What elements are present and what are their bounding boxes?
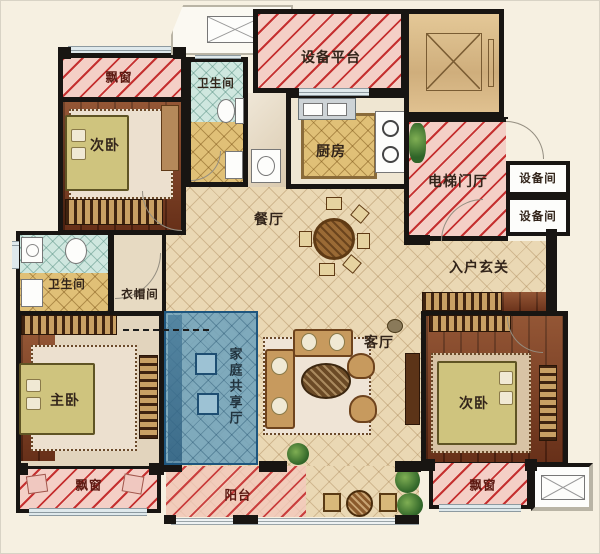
washer xyxy=(21,237,43,263)
dining-table xyxy=(313,218,355,260)
burner xyxy=(382,120,399,137)
pillow xyxy=(26,397,41,410)
closet-bottom-right xyxy=(429,315,511,332)
label-bay-bottom-right: 飘窗 xyxy=(469,475,496,494)
label-equipment-room-lower: 设备间 xyxy=(519,208,557,224)
wardrobe-bottom-right xyxy=(539,365,557,441)
pillow xyxy=(71,147,86,160)
master-closet xyxy=(21,315,117,335)
sink-bath-top xyxy=(225,151,243,179)
floor-plan: 飘窗 次卧 卫生间 设备平台 厨房 xyxy=(0,0,600,554)
label-bay-top-left: 飘窗 xyxy=(105,67,132,86)
label-kitchen: 厨房 xyxy=(316,141,346,161)
armchair-right xyxy=(349,395,377,423)
family-hall-curtain xyxy=(168,315,182,461)
toilet-left xyxy=(65,238,87,264)
wall-segment xyxy=(149,463,164,475)
toilet-tank xyxy=(235,98,244,124)
balcony-chair xyxy=(379,493,397,512)
kitchen-sink xyxy=(298,98,356,120)
label-family-hall: 家庭共享厅 xyxy=(225,347,244,427)
balcony-table xyxy=(346,490,373,517)
sofa-cushion xyxy=(301,333,317,351)
toilet-top xyxy=(217,99,235,123)
floor-lamp xyxy=(387,319,403,333)
label-dining: 餐厅 xyxy=(254,209,284,229)
washer-drum xyxy=(26,244,39,257)
balcony-railing xyxy=(171,518,419,525)
basin xyxy=(257,156,275,176)
window-bottom-right xyxy=(439,504,521,512)
label-master-bedroom: 主卧 xyxy=(50,390,80,410)
label-bath-top: 卫生间 xyxy=(197,75,235,91)
coffee-table xyxy=(301,363,351,399)
sofa-cushion xyxy=(271,397,288,415)
label-living: 客厅 xyxy=(364,332,394,352)
label-bath-left: 卫生间 xyxy=(48,276,86,292)
wall-segment xyxy=(421,459,435,471)
pillow xyxy=(499,391,513,405)
sink-bath-left xyxy=(21,279,43,307)
dashed-opening xyxy=(123,329,209,331)
dining-chair xyxy=(299,231,312,247)
pillow xyxy=(26,379,41,392)
wall-segment xyxy=(16,463,28,475)
window-kitchen xyxy=(299,88,369,96)
sink-bowl xyxy=(327,103,347,116)
family-chair xyxy=(197,393,219,415)
tv-cabinet xyxy=(405,353,420,425)
foyer-cabinet xyxy=(422,292,502,311)
elevator-x-icon xyxy=(426,33,482,91)
dining-chair xyxy=(326,197,342,210)
plant-icon xyxy=(397,493,423,517)
pillow xyxy=(499,371,513,385)
foyer-wood-passage xyxy=(502,292,546,313)
sink-bowl xyxy=(303,103,323,116)
label-cloakroom: 衣帽间 xyxy=(121,286,159,302)
wall-segment xyxy=(259,461,287,472)
label-equipment-platform: 设备平台 xyxy=(301,47,361,67)
label-bedroom-bottom-right: 次卧 xyxy=(459,393,489,413)
dining-chair xyxy=(357,233,370,249)
plant-icon xyxy=(409,123,426,163)
label-bay-bottom-left: 飘窗 xyxy=(75,475,102,494)
master-wardrobe xyxy=(139,355,158,439)
plant-icon xyxy=(287,443,309,465)
bay-seat xyxy=(26,474,48,495)
wall-segment xyxy=(525,459,537,471)
wall-segment xyxy=(173,47,186,59)
label-elevator-hall: 电梯门厅 xyxy=(428,171,488,191)
elevator-door-slot xyxy=(488,39,494,87)
stove xyxy=(375,111,405,173)
desk-top-left xyxy=(161,105,179,171)
pillow xyxy=(71,129,86,142)
window-bath-left xyxy=(12,241,19,269)
window-bottom-left xyxy=(29,508,147,516)
bay-seat xyxy=(122,473,145,494)
wall-segment xyxy=(395,515,419,524)
armchair-right xyxy=(347,353,375,379)
family-chair xyxy=(195,353,217,375)
wall-segment xyxy=(233,515,258,524)
label-foyer: 入户玄关 xyxy=(449,257,509,277)
sofa-cushion xyxy=(329,333,345,351)
label-bedroom-top-left: 次卧 xyxy=(90,135,120,155)
burner xyxy=(382,146,399,163)
label-equipment-room-upper: 设备间 xyxy=(519,170,557,186)
crossed-box-icon xyxy=(541,475,585,500)
dining-chair xyxy=(319,263,335,276)
wall-segment xyxy=(404,235,430,245)
wall-segment xyxy=(395,461,421,472)
wall-segment xyxy=(58,47,71,59)
label-balcony: 阳台 xyxy=(224,485,251,504)
wall-segment xyxy=(164,515,176,524)
sofa-cushion xyxy=(271,357,288,375)
balcony-chair xyxy=(323,493,341,512)
